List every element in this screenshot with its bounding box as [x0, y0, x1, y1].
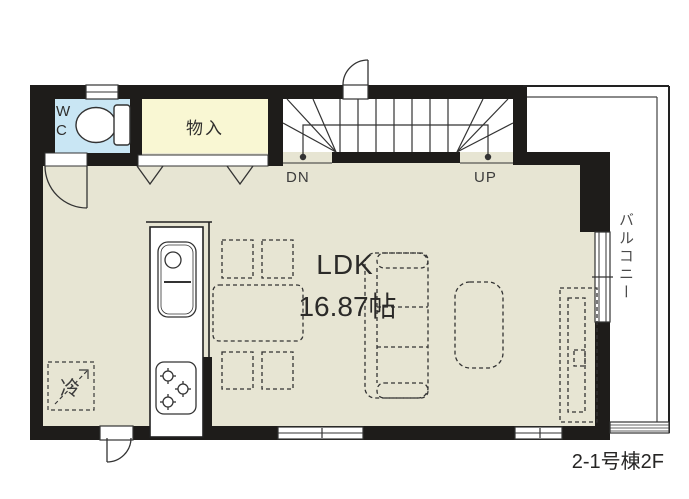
toilet-icon [76, 105, 130, 145]
storage-label: 物入 [142, 114, 268, 139]
door-bottom [100, 426, 133, 462]
wc-label: WC [56, 103, 74, 141]
stairs-up-label: UP [474, 169, 497, 186]
window-top [86, 85, 118, 99]
wall-left [30, 85, 43, 440]
window-bottom-left [278, 427, 363, 439]
wall-wc-storage-divider [130, 85, 142, 155]
floor-plan: WC 物入 LDK 16.87帖 DN UP バルコニー 冷 2-1号棟2F [0, 0, 689, 499]
ldk-label: LDK [250, 249, 440, 281]
unit-label: 2-1号棟2F [538, 445, 664, 474]
stairs-down-label: DN [286, 169, 310, 186]
door-arc [343, 60, 368, 85]
window-balcony-sliding [592, 232, 613, 322]
balcony-label: バルコニー [615, 212, 636, 342]
stove-icon [156, 362, 196, 414]
kitchen-sink [158, 242, 196, 317]
window-bottom-right [515, 427, 562, 439]
kitchen [146, 222, 212, 437]
stair-dn-dot [300, 154, 306, 160]
faucet-icon [165, 252, 181, 268]
door-stairs-top [343, 60, 368, 99]
stair-bottom-wall [332, 152, 460, 163]
ldk-size-label: 16.87帖 [250, 285, 445, 325]
balcony-railing [610, 422, 669, 433]
wall-storage-stairs-divider [268, 85, 283, 166]
stair-up-dot [485, 154, 491, 160]
refrigerator-label: 冷 [60, 372, 80, 401]
door-arc [107, 438, 131, 462]
